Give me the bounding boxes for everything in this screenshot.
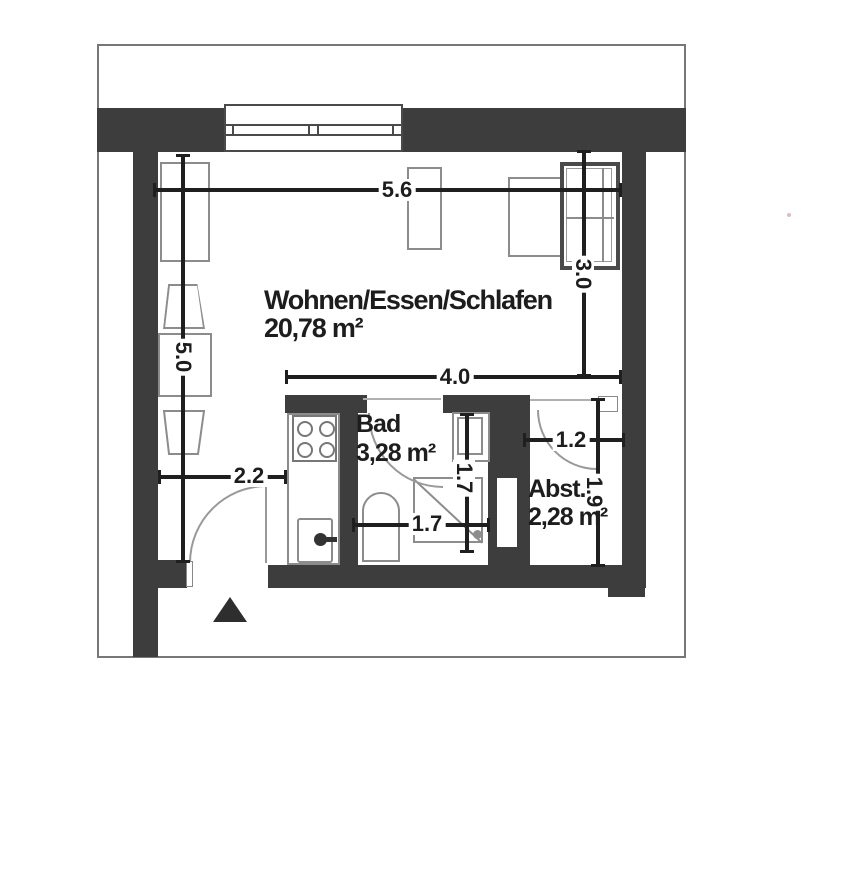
dim-label-bed-depth: 3.0: [572, 256, 594, 293]
dim-label-top-width: 5.6: [379, 179, 416, 201]
faucet-stem: [326, 537, 337, 542]
wall-entry-stub: [156, 560, 187, 588]
wall-bath-top-left: [285, 395, 367, 413]
floor-plan: 5.6 3.0 5.0 4.0 2.2 1.2 1.7 1.7 1.9 Wohn…: [0, 0, 856, 874]
bed: [560, 162, 620, 270]
washbasin-inner: [457, 417, 483, 455]
wall-top-right: [402, 108, 686, 152]
stove-burner: [297, 442, 313, 458]
wall-top-left: [97, 108, 226, 152]
bed-line: [602, 168, 604, 262]
wall-bottom: [268, 565, 625, 588]
bath-door-threshold: [363, 398, 441, 400]
entry-door-leaf: [265, 485, 267, 563]
dim-label-left-height: 5.0: [172, 339, 194, 376]
dim-label-storage-width: 1.2: [553, 429, 590, 451]
wall-bath-storage: [488, 395, 530, 565]
room-area-living: 20,78 m²: [264, 314, 362, 342]
storage-door-threshold: [530, 399, 598, 401]
window-mullion: [392, 124, 394, 136]
wall-right: [622, 152, 646, 588]
room-label-bath: Bad: [356, 411, 400, 437]
wall-shaft-recess: [497, 478, 517, 547]
room-label-storage: Abst.: [528, 476, 586, 502]
dim-line-entry-width: [158, 475, 287, 479]
window: [224, 104, 403, 152]
entrance-marker-icon: [213, 597, 247, 622]
dim-label-entry-width: 2.2: [231, 465, 268, 487]
washbasin: [452, 412, 490, 462]
room-area-storage: 2,28 m²: [528, 504, 607, 530]
shower-drain-icon: [473, 530, 482, 539]
bed-mattress: [566, 168, 612, 262]
stove-burner: [319, 442, 335, 458]
toilet: [362, 492, 400, 562]
window-mullion: [308, 124, 310, 136]
scan-artifact-dot: [787, 213, 791, 217]
wall-bath-top-right: [443, 395, 490, 413]
dim-label-bath-height: 1.7: [453, 460, 475, 497]
room-label-living: Wohnen/Essen/Schlafen: [264, 286, 552, 314]
bed-line: [566, 217, 614, 219]
dim-label-bath-width: 1.7: [409, 513, 446, 535]
window-mullion: [232, 124, 234, 136]
window-glazing-line: [226, 124, 401, 126]
wall-left: [133, 152, 158, 657]
stove-burner: [297, 421, 313, 437]
room-area-bath: 3,28 m²: [356, 440, 435, 466]
window-mullion: [317, 124, 319, 136]
window-glazing-line: [226, 134, 401, 136]
stove-burner: [319, 421, 335, 437]
dim-label-mid-width: 4.0: [437, 366, 474, 388]
wardrobe: [160, 162, 210, 262]
entry-door-jamb: [186, 561, 193, 587]
